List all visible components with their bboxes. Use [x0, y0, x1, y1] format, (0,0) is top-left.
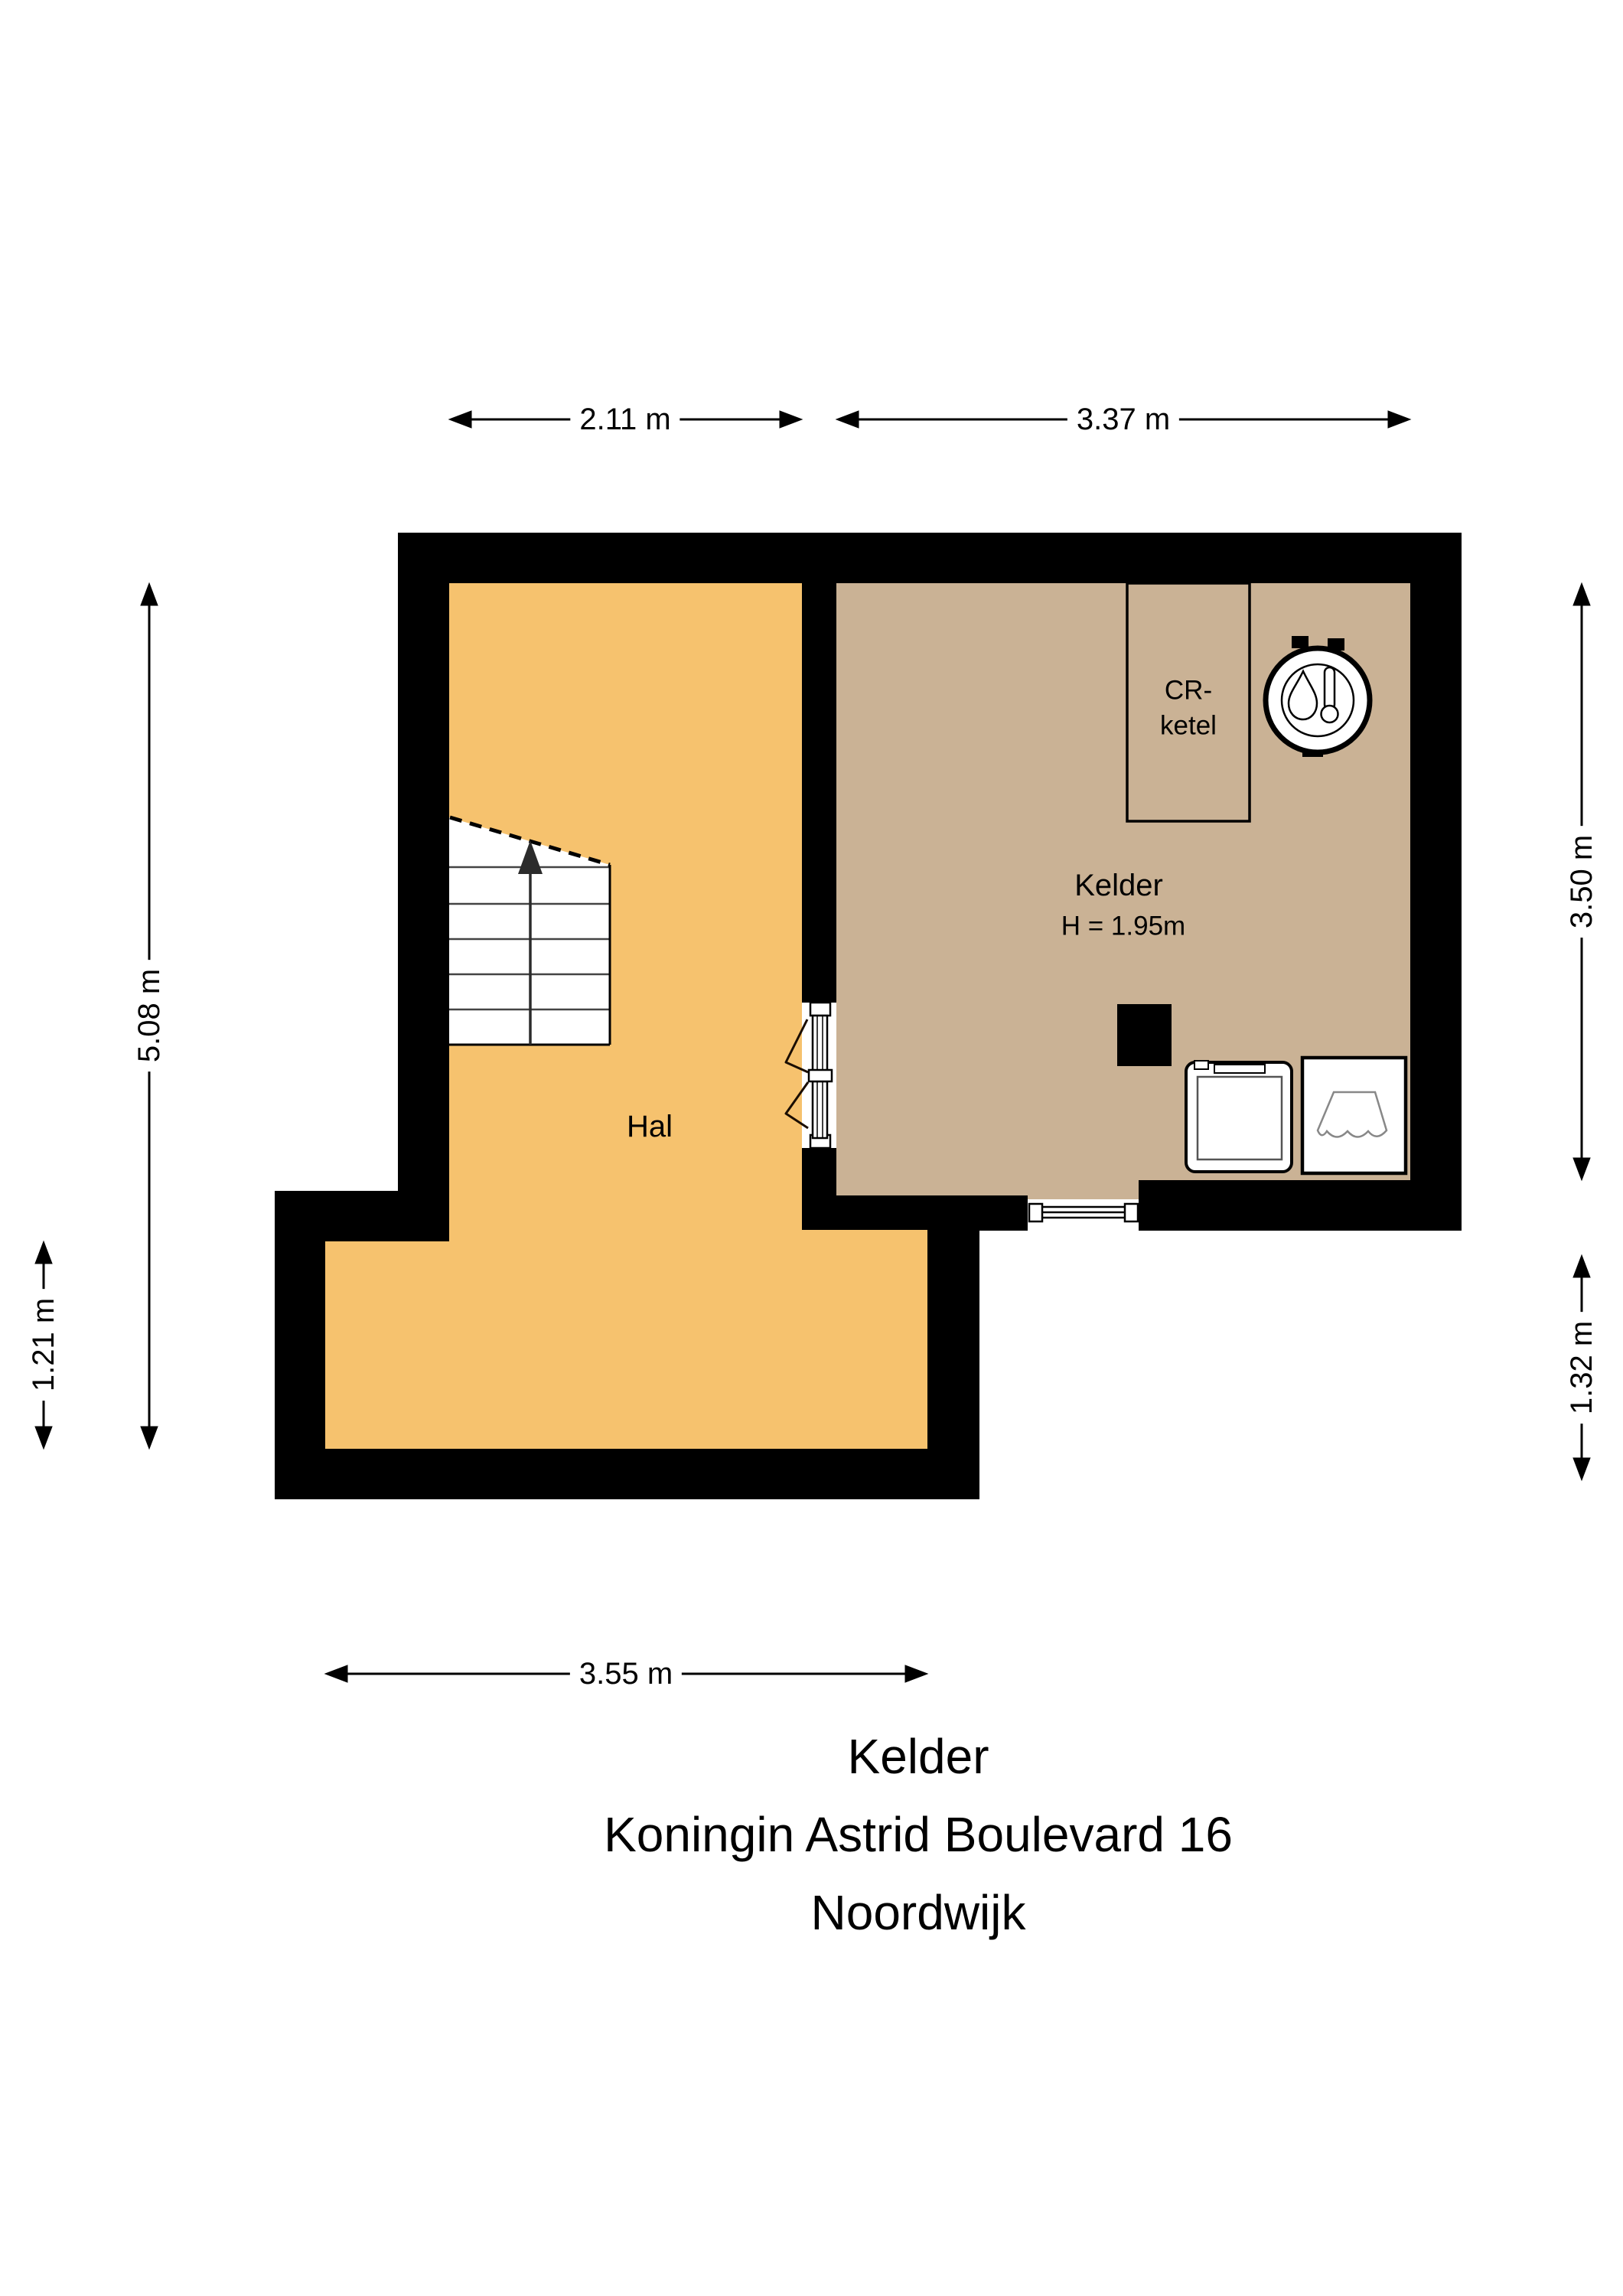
plan-title-address: Koningin Astrid Boulevard 16	[604, 1795, 1233, 1874]
dimension-label-top-right: 3.37 m	[1067, 401, 1179, 438]
plan-title-floor: Kelder	[604, 1717, 1233, 1795]
laundry-basket-icon	[1302, 1058, 1406, 1173]
thermometer-glyph	[1325, 667, 1335, 709]
floor-plan-svg	[0, 0, 1623, 2296]
column	[1117, 1004, 1172, 1066]
dimension-label-right-upper: 3.50 m	[1563, 826, 1600, 938]
plan-title-city: Noordwijk	[604, 1874, 1233, 1952]
exterior-door	[1028, 1199, 1139, 1231]
dimension-label-right-lower: 1.32 m	[1563, 1312, 1600, 1424]
closet-label-cr-line2: ketel	[1160, 713, 1217, 739]
plan-title-block: Kelder Koningin Astrid Boulevard 16 Noor…	[604, 1717, 1233, 1952]
closet-label-cr-line1: CR-	[1165, 677, 1212, 704]
floor-plan-page: 2.11 m 3.37 m 5.08 m 1.21 m 3.50 m 1.32 …	[0, 0, 1623, 2296]
door-opening	[1028, 1199, 1139, 1231]
room-label-kelder-height: H = 1.95m	[1061, 913, 1185, 940]
room-label-hal: Hal	[627, 1111, 673, 1142]
dimension-label-top-left: 2.11 m	[570, 401, 680, 438]
dimension-label-left-lower: 1.21 m	[25, 1289, 62, 1401]
washing-machine-icon	[1186, 1061, 1292, 1172]
dimension-label-left-total: 5.08 m	[131, 960, 168, 1071]
room-label-kelder: Kelder	[1074, 870, 1163, 901]
dimension-label-bottom: 3.55 m	[570, 1655, 682, 1692]
